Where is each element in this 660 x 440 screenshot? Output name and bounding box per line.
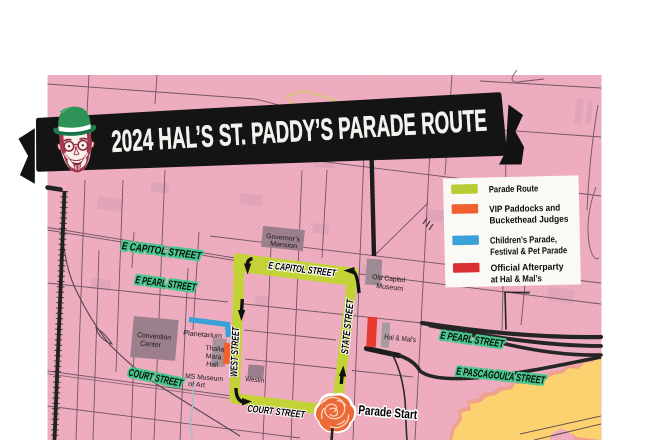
- svg-text:VIP Paddocks and: VIP Paddocks and: [489, 203, 560, 215]
- svg-text:Buckethead Judges: Buckethead Judges: [489, 214, 568, 226]
- svg-text:Center: Center: [140, 339, 162, 350]
- svg-text:Westin: Westin: [245, 375, 265, 385]
- svg-text:Hall: Hall: [206, 360, 219, 369]
- svg-text:Thalia: Thalia: [205, 344, 225, 354]
- svg-text:Festival & Pet Parade: Festival & Pet Parade: [490, 245, 567, 257]
- svg-text:WEST STREET: WEST STREET: [229, 326, 242, 377]
- svg-text:Children’s Parade,: Children’s Parade,: [490, 234, 557, 246]
- svg-text:of Art: of Art: [188, 380, 206, 389]
- svg-text:Official Afterparty: Official Afterparty: [490, 261, 564, 273]
- svg-text:Parade Route: Parade Route: [489, 183, 539, 194]
- svg-text:at Hal & Mal’s: at Hal & Mal’s: [491, 273, 542, 284]
